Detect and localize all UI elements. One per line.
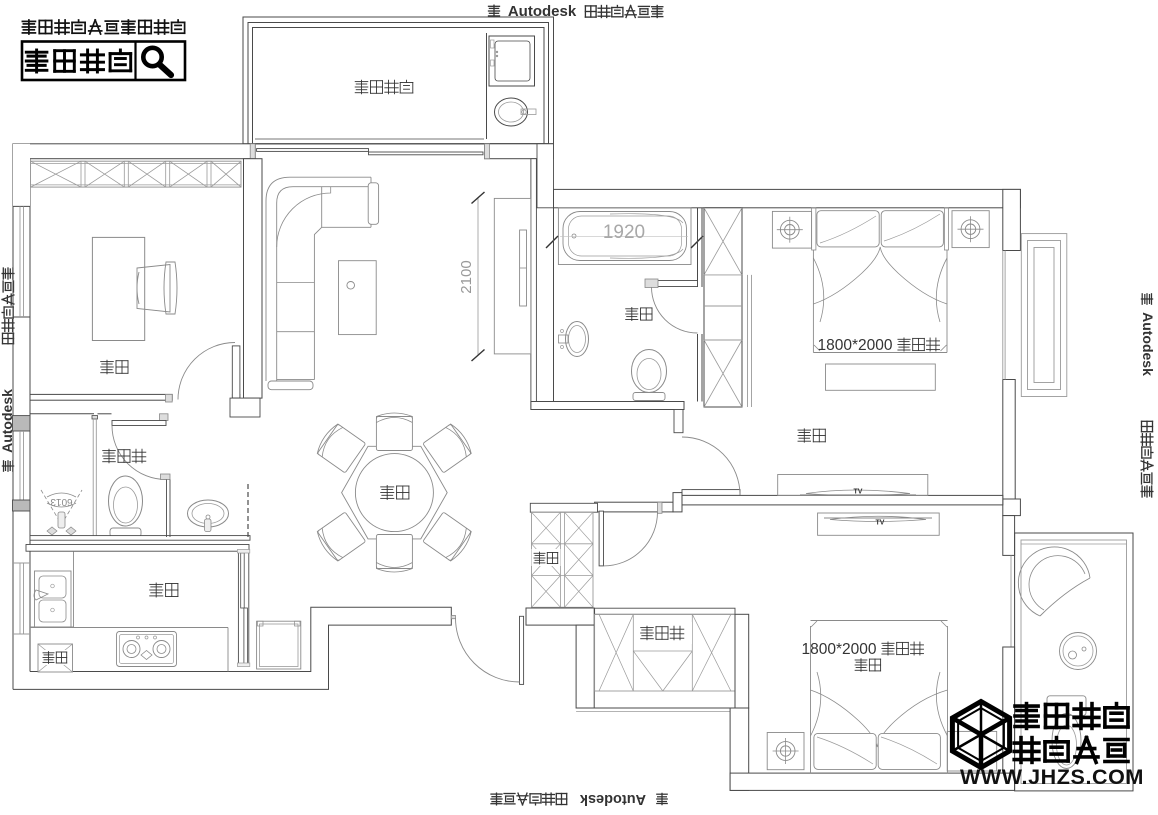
- svg-text:Autodesk: Autodesk: [579, 791, 646, 807]
- svg-text:Autodesk: Autodesk: [1140, 312, 1156, 376]
- svg-text:6013: 6013: [50, 496, 73, 507]
- svg-text:WWW.JHZS.COM: WWW.JHZS.COM: [960, 765, 1144, 789]
- svg-text:TV: TV: [876, 520, 885, 527]
- svg-text:1800*2000: 1800*2000: [818, 337, 893, 354]
- svg-text:1920: 1920: [603, 222, 645, 243]
- svg-text:TV: TV: [854, 489, 863, 496]
- svg-text:1800*2000: 1800*2000: [802, 641, 877, 658]
- svg-text:2100: 2100: [458, 260, 475, 293]
